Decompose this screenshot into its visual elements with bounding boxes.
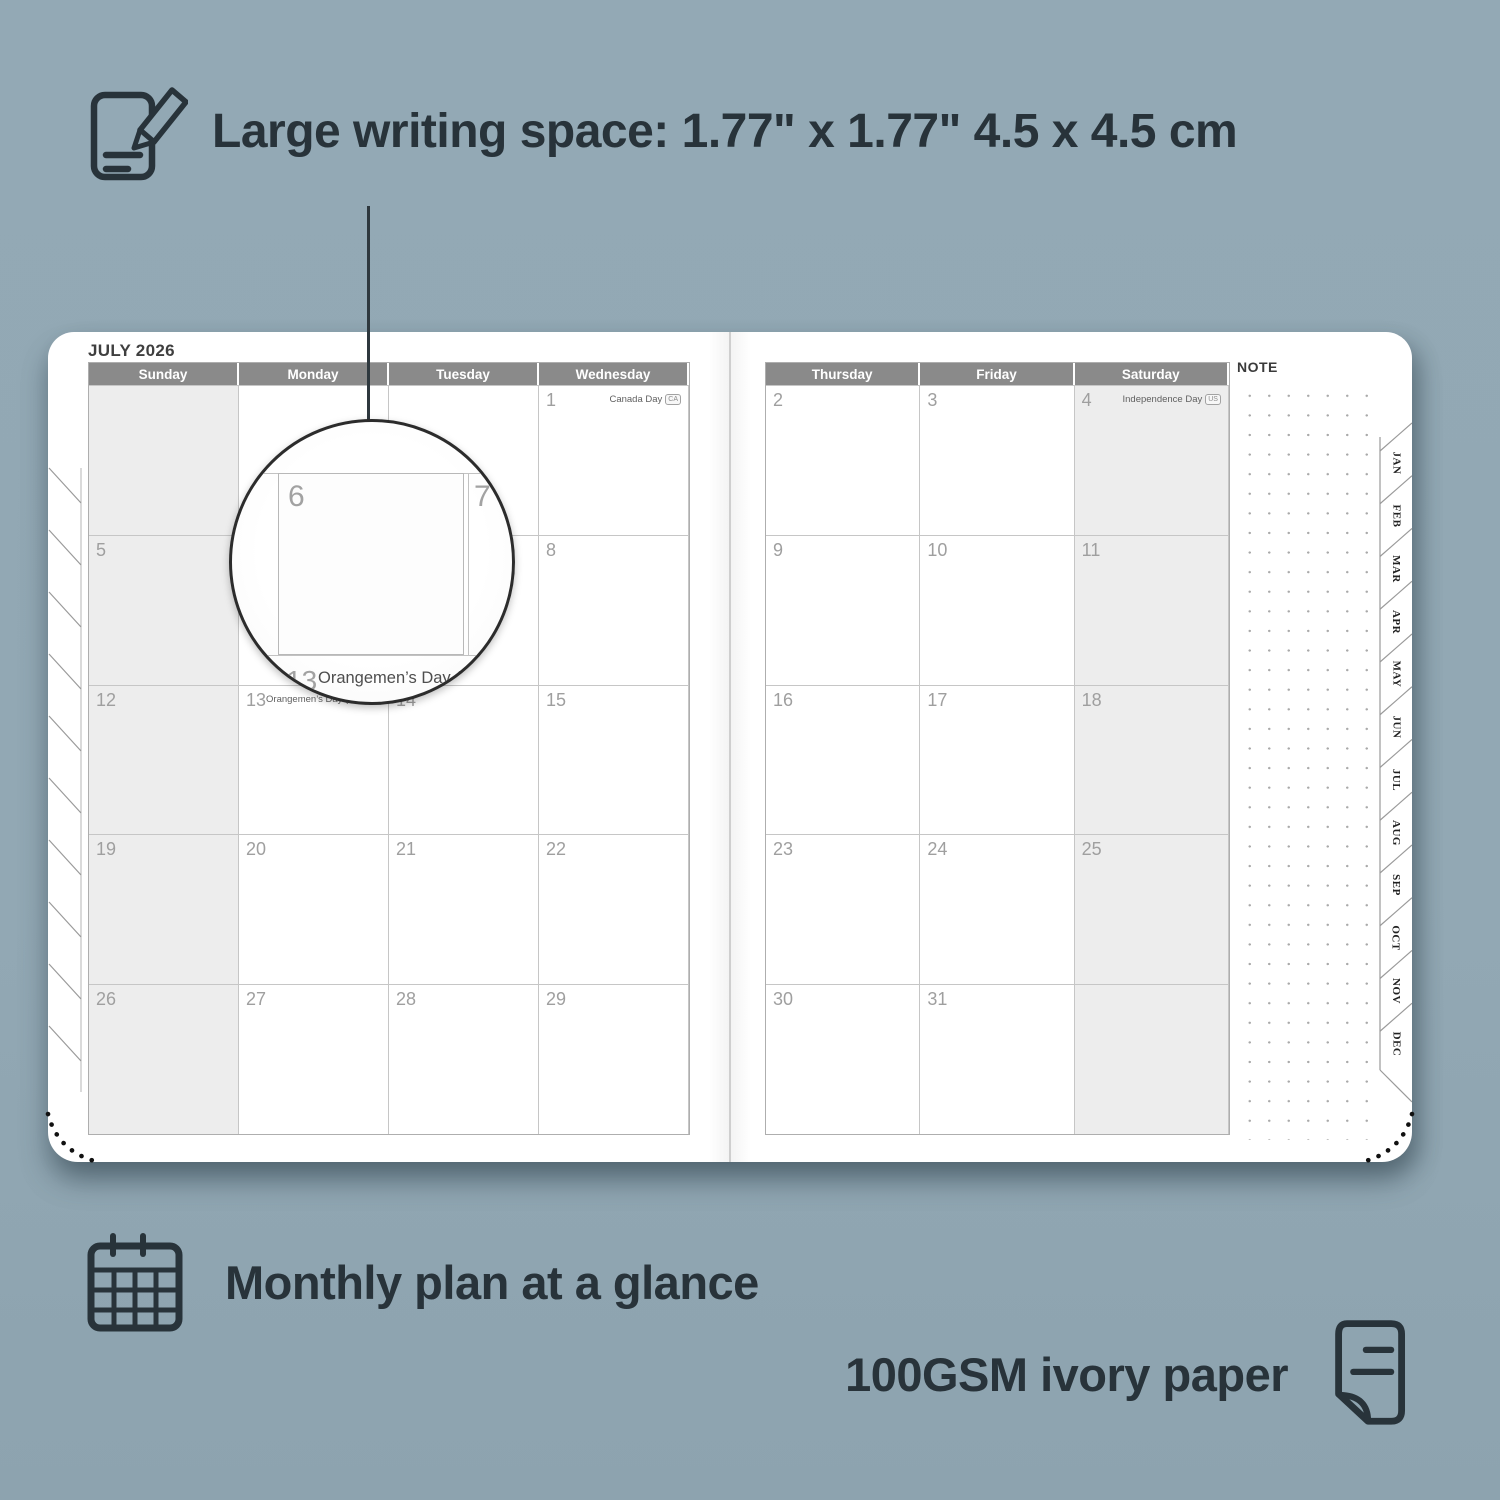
calendar-cell: 9 <box>766 535 920 685</box>
day-number: 24 <box>927 840 947 860</box>
magnified-holiday-label: Orangemen’s Day (n.i.)UK <box>318 669 515 688</box>
day-number: 29 <box>546 990 566 1010</box>
day-header: Tuesday <box>389 363 539 385</box>
monthly-plan-label: Monthly plan at a glance <box>225 1255 759 1310</box>
note-pencil-icon <box>88 78 188 184</box>
calendar-cell: 26 <box>89 984 239 1134</box>
calendar-cell: 21 <box>389 834 539 984</box>
day-number: 17 <box>927 691 947 711</box>
holiday-label: Independence DayUS <box>1122 394 1221 405</box>
day-number: 21 <box>396 840 416 860</box>
magnified-grid-line <box>232 655 512 656</box>
magnifier-circle: 6 7 13 Orangemen’s Day (n.i.)UK <box>229 419 515 705</box>
callout-pointer-line <box>367 206 370 422</box>
month-tab-label: JAN <box>1390 452 1402 475</box>
day-number: 25 <box>1082 840 1102 860</box>
month-tab-apr: APR <box>1380 595 1412 648</box>
magnified-writing-space <box>278 473 464 655</box>
month-tab-jun: JUN <box>1380 701 1412 754</box>
month-tab-label: MAY <box>1390 661 1402 688</box>
paper-caption: 100GSM ivory paper <box>845 1318 1410 1430</box>
day-number: 26 <box>96 990 116 1010</box>
day-number: 5 <box>96 541 106 561</box>
calendar-cell: 10 <box>920 535 1074 685</box>
calendar-cell: 22 <box>539 834 689 984</box>
day-number: 19 <box>96 840 116 860</box>
calendar-icon <box>85 1232 185 1332</box>
day-number: 27 <box>246 990 266 1010</box>
month-tab-feb: FEB <box>1380 490 1412 543</box>
holiday-text: Orangemen’s Day (n.i.) <box>318 669 488 687</box>
calendar-cell: 29 <box>539 984 689 1134</box>
month-tab-jan: JAN <box>1380 437 1412 490</box>
calendar-cell: 8 <box>539 535 689 685</box>
calendar-cell <box>1075 984 1229 1134</box>
magnified-day-number: 6 <box>288 480 305 514</box>
product-image: Large writing space: 1.77" x 1.77" 4.5 x… <box>0 0 1500 1500</box>
month-tab-label: AUG <box>1390 820 1402 846</box>
day-number: 18 <box>1082 691 1102 711</box>
calendar-cell: 30 <box>766 984 920 1134</box>
calendar-cell: 4Independence DayUS <box>1075 385 1229 535</box>
calendar-cell: 1Canada DayCA <box>539 385 689 535</box>
calendar-cell: 14 <box>389 685 539 835</box>
day-number: 9 <box>773 541 783 561</box>
month-title: JULY 2026 <box>88 341 175 361</box>
magnified-day-number: 13 <box>286 665 317 697</box>
month-tab-label: JUL <box>1390 769 1402 791</box>
calendar-cell: 31 <box>920 984 1074 1134</box>
magnified-day-number: 7 <box>474 480 491 514</box>
day-number: 31 <box>927 990 947 1010</box>
day-header: Saturday <box>1075 363 1229 385</box>
month-tab-label: OCT <box>1390 925 1402 950</box>
day-number: 16 <box>773 691 793 711</box>
month-tab-jul: JUL <box>1380 754 1412 807</box>
month-tab-label: NOV <box>1390 978 1402 1004</box>
day-header: Sunday <box>89 363 239 385</box>
month-tab-label: APR <box>1390 610 1402 634</box>
calendar-cell: 11 <box>1075 535 1229 685</box>
used-tabs-edge <box>48 452 84 1132</box>
day-header: Wednesday <box>539 363 689 385</box>
month-tab-oct: OCT <box>1380 912 1412 965</box>
paper-sheet-icon <box>1326 1318 1410 1430</box>
calendar-cell: 27 <box>239 984 389 1134</box>
writing-space-callout: Large writing space: 1.77" x 1.77" 4.5 x… <box>88 78 1237 184</box>
day-number: 2 <box>773 391 783 411</box>
planner-spread: JULY 2026 SundayMondayTuesdayWednesday1C… <box>48 332 1412 1162</box>
month-tab-label: DEC <box>1390 1031 1402 1056</box>
calendar-cell: 28 <box>389 984 539 1134</box>
calendar-cell: 24 <box>920 834 1074 984</box>
country-badge: CA <box>665 394 681 405</box>
calendar-cell: 19 <box>89 834 239 984</box>
calendar-cell <box>89 385 239 535</box>
day-number: 12 <box>96 691 116 711</box>
month-tab-label: SEP <box>1390 875 1402 897</box>
day-number: 8 <box>546 541 556 561</box>
calendar-cell: 5 <box>89 535 239 685</box>
country-badge: US <box>1205 394 1221 405</box>
holiday-label: Canada DayCA <box>609 394 681 405</box>
day-number: 3 <box>927 391 937 411</box>
month-tab-aug: AUG <box>1380 806 1412 859</box>
calendar-cell: 20 <box>239 834 389 984</box>
month-tab-label: FEB <box>1390 505 1402 528</box>
day-number: 28 <box>396 990 416 1010</box>
month-tab-sep: SEP <box>1380 859 1412 912</box>
day-number: 30 <box>773 990 793 1010</box>
calendar-cell: 23 <box>766 834 920 984</box>
month-tab-nov: NOV <box>1380 965 1412 1018</box>
country-badge: UK <box>494 671 515 686</box>
calendar-cell: 13Orangemen’s Day (n.i.)UK <box>239 685 389 835</box>
note-label: NOTE <box>1237 359 1278 375</box>
day-number: 10 <box>927 541 947 561</box>
note-dot-grid <box>1234 378 1374 1140</box>
day-number: 23 <box>773 840 793 860</box>
writing-space-label: Large writing space: 1.77" x 1.77" 4.5 x… <box>212 104 1237 159</box>
day-number: 11 <box>1082 541 1101 561</box>
month-tab-mar: MAR <box>1380 543 1412 596</box>
calendar-grid-right: ThursdayFridaySaturday234Independence Da… <box>765 362 1230 1135</box>
month-tab-dec: DEC <box>1380 1017 1412 1070</box>
day-number: 20 <box>246 840 266 860</box>
paper-label: 100GSM ivory paper <box>845 1347 1288 1402</box>
day-number: 1 <box>546 391 556 411</box>
monthly-plan-caption: Monthly plan at a glance <box>85 1232 759 1332</box>
month-tab-label: MAR <box>1390 555 1402 583</box>
day-number: 22 <box>546 840 566 860</box>
binding-fold-line <box>729 332 731 1162</box>
day-number: 4 <box>1082 391 1092 411</box>
calendar-cell: 17 <box>920 685 1074 835</box>
month-tab-may: MAY <box>1380 648 1412 701</box>
day-header: Friday <box>920 363 1074 385</box>
calendar-cell: 25 <box>1075 834 1229 984</box>
day-number: 15 <box>546 691 566 711</box>
calendar-cell: 3 <box>920 385 1074 535</box>
day-number: 13 <box>246 691 266 711</box>
calendar-cell: 18 <box>1075 685 1229 835</box>
calendar-cell: 2 <box>766 385 920 535</box>
calendar-cell: 16 <box>766 685 920 835</box>
calendar-cell: 15 <box>539 685 689 835</box>
month-tab-label: JUN <box>1390 716 1402 739</box>
month-tabs: JANFEBMARAPRMAYJUNJULAUGSEPOCTNOVDEC <box>1380 437 1412 1070</box>
day-header: Thursday <box>766 363 920 385</box>
calendar-cell: 12 <box>89 685 239 835</box>
magnified-grid-line <box>468 473 469 655</box>
